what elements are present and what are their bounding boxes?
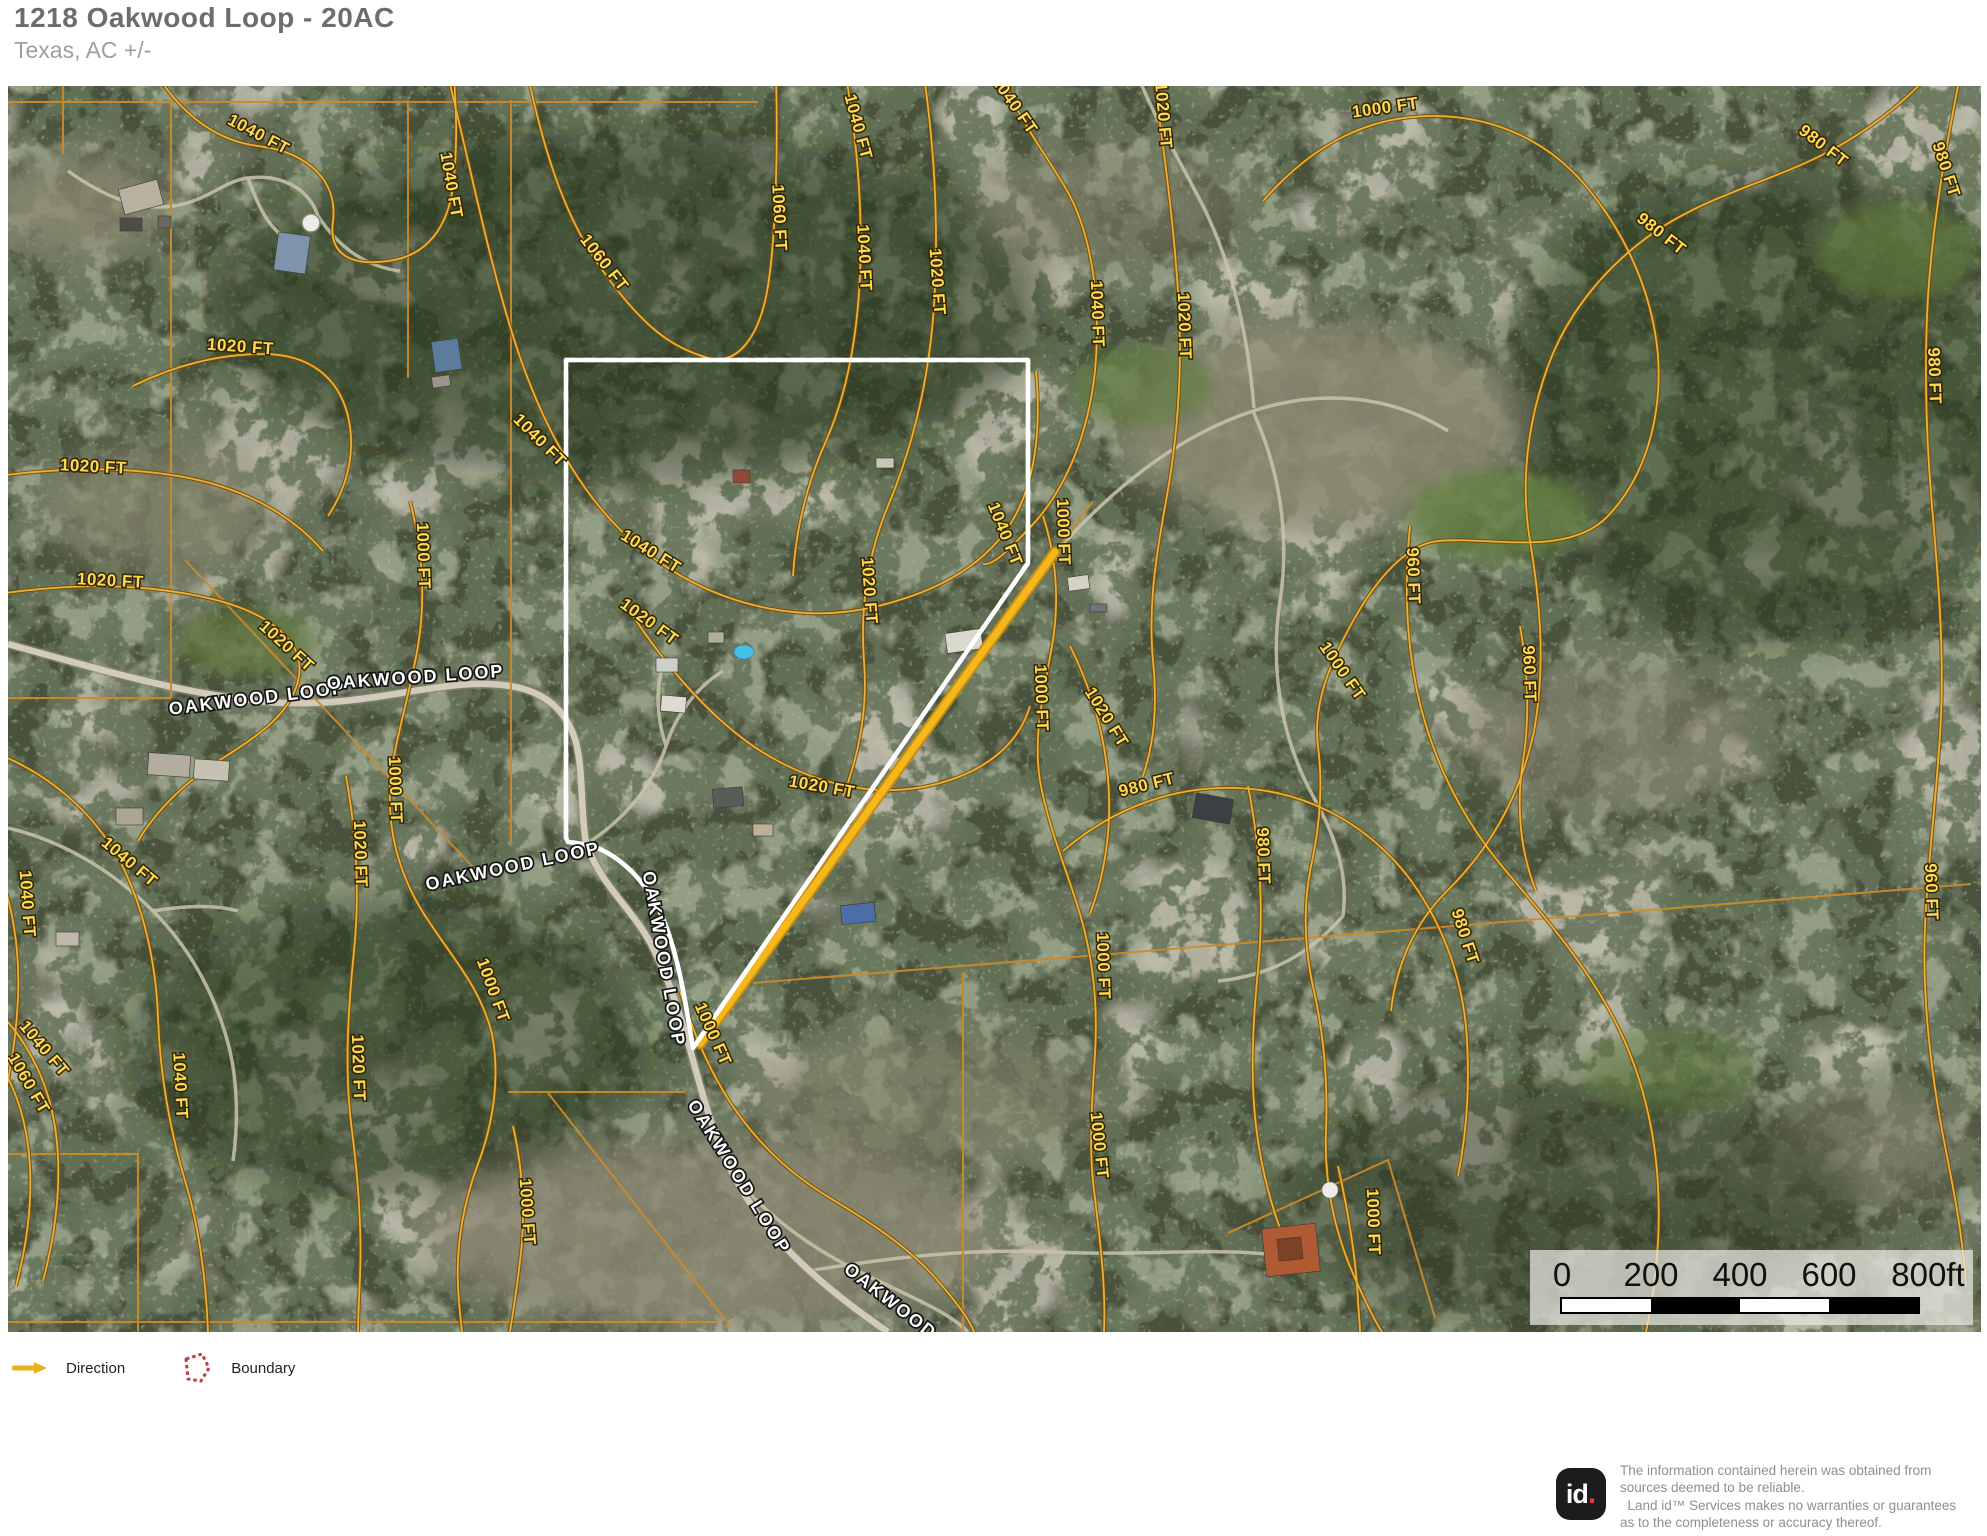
page-subtitle: Texas, AC +/- xyxy=(14,37,395,64)
contour-label: 1000 FT xyxy=(1363,1188,1384,1256)
page-title: 1218 Oakwood Loop - 20AC xyxy=(14,2,395,34)
scale-bar-segments xyxy=(1560,1297,1920,1314)
contour-label: 1000 FT xyxy=(1053,498,1074,566)
scale-segment xyxy=(1829,1299,1918,1312)
contour-label: 1040 FT xyxy=(853,224,875,292)
contour-label: 1020 FT xyxy=(1174,292,1195,360)
disclaimer-line: The information contained herein was obt… xyxy=(1620,1462,1987,1479)
scale-label-400: 400 xyxy=(1712,1256,1767,1294)
contour-label: 1000 FT xyxy=(413,522,434,590)
scale-segment xyxy=(1562,1299,1651,1312)
logo-red-dot: . xyxy=(1588,1477,1596,1511)
scale-bar: 0 200 400 600 800ft xyxy=(1530,1250,1973,1325)
contour-label: 960 FT xyxy=(1403,547,1424,605)
contour-label: 960 FT xyxy=(1921,863,1942,921)
contour-label: 960 FT xyxy=(1519,645,1540,703)
disclaimer-line: Land id™ Services makes no warranties or… xyxy=(1620,1497,1987,1514)
map-canvas: OAKWOOD LOOPOAKWOOD LOOPOAKWOOD LOOPOAKW… xyxy=(8,86,1981,1332)
contour-label: 1060 FT xyxy=(768,184,790,252)
land-id-logo: id. xyxy=(1556,1468,1606,1520)
contour-label: 1000 FT xyxy=(385,756,406,824)
contour-label: 1020 FT xyxy=(59,455,127,477)
map-svg: OAKWOOD LOOPOAKWOOD LOOPOAKWOOD LOOPOAKW… xyxy=(8,86,1981,1332)
logo-id-text: id xyxy=(1566,1479,1588,1510)
disclaimer-line: as to the completeness or accuracy there… xyxy=(1620,1514,1987,1531)
orange-roof-house xyxy=(1262,1223,1321,1276)
contour-label: 1020 FT xyxy=(348,1034,369,1102)
contour-label: 1020 FT xyxy=(350,820,371,888)
contour-label: 1000 FT xyxy=(1031,664,1052,732)
direction-arrow-icon xyxy=(12,1361,48,1375)
contour-label: 980 FT xyxy=(1924,347,1945,405)
boundary-polygon-icon xyxy=(181,1351,213,1385)
scale-label-200: 200 xyxy=(1623,1256,1678,1294)
contour-label: 1040 FT xyxy=(1087,280,1108,348)
legend-boundary-label: Boundary xyxy=(231,1360,295,1377)
scale-segment xyxy=(1740,1299,1829,1312)
disclaimer: The information contained herein was obt… xyxy=(1620,1462,1987,1531)
contour-label: 1020 FT xyxy=(76,569,144,591)
legend-direction-label: Direction xyxy=(66,1360,125,1377)
contour-label: 1000 FT xyxy=(1093,932,1114,1000)
footer: id. The information contained herein was… xyxy=(1556,1462,1987,1531)
contour-label: 980 FT xyxy=(1253,827,1274,885)
header: 1218 Oakwood Loop - 20AC Texas, AC +/- xyxy=(14,2,395,64)
page: { "header": { "title": "1218 Oakwood Loo… xyxy=(0,0,1987,1536)
scale-label-800ft: 800ft xyxy=(1891,1256,1964,1294)
scale-segment xyxy=(1651,1299,1740,1312)
scale-label-600: 600 xyxy=(1801,1256,1856,1294)
disclaimer-line: sources deemed to be reliable. xyxy=(1620,1479,1987,1496)
scale-label-0: 0 xyxy=(1553,1256,1571,1294)
legend: Direction Boundary xyxy=(12,1348,295,1388)
contour-label: 1040 FT xyxy=(169,1052,191,1120)
